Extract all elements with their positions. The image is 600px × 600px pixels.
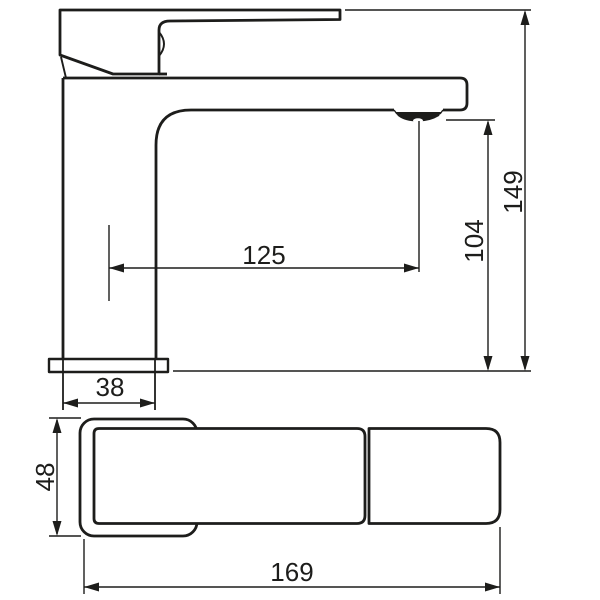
dim-body-depth-label: 38 [96, 372, 125, 402]
faucet-side-view [49, 10, 467, 372]
arrowhead-up [521, 10, 530, 25]
handle-lever-outline [60, 10, 340, 74]
arrowhead-right [404, 264, 419, 273]
arrowhead-left [109, 264, 124, 273]
arrowhead-left [84, 583, 99, 592]
dim-base-width-label: 48 [30, 463, 60, 492]
arrowhead-down [521, 356, 530, 371]
arrowhead-up [484, 120, 493, 135]
faucet-plan-view [80, 419, 500, 536]
base-plate [49, 359, 168, 372]
aerator-notch [413, 118, 423, 122]
arrowhead-right [485, 583, 500, 592]
dimension-104: 104 [446, 120, 495, 371]
dim-overall-height-label: 149 [498, 170, 528, 213]
arrowhead-left [63, 399, 78, 408]
arrowhead-down [53, 521, 62, 536]
arrowhead-down [484, 356, 493, 371]
faucet-body-outline [63, 78, 467, 359]
faucet-dimension-drawing: 149 104 125 38 48 [0, 0, 600, 600]
arrowhead-right [140, 399, 155, 408]
dim-outlet-height-label: 104 [459, 219, 489, 262]
aerator [394, 110, 443, 123]
dimension-149: 149 [173, 10, 531, 371]
lever-body-plan [94, 429, 365, 524]
handle-skirt-line [61, 57, 66, 78]
dimension-48: 48 [30, 418, 81, 536]
dim-spout-reach-label: 125 [242, 240, 285, 270]
dim-overall-length-label: 169 [270, 557, 313, 587]
technical-drawing-canvas: 149 104 125 38 48 [0, 0, 600, 600]
lever-endcap-plan [369, 429, 500, 524]
arrowhead-up [53, 418, 62, 433]
